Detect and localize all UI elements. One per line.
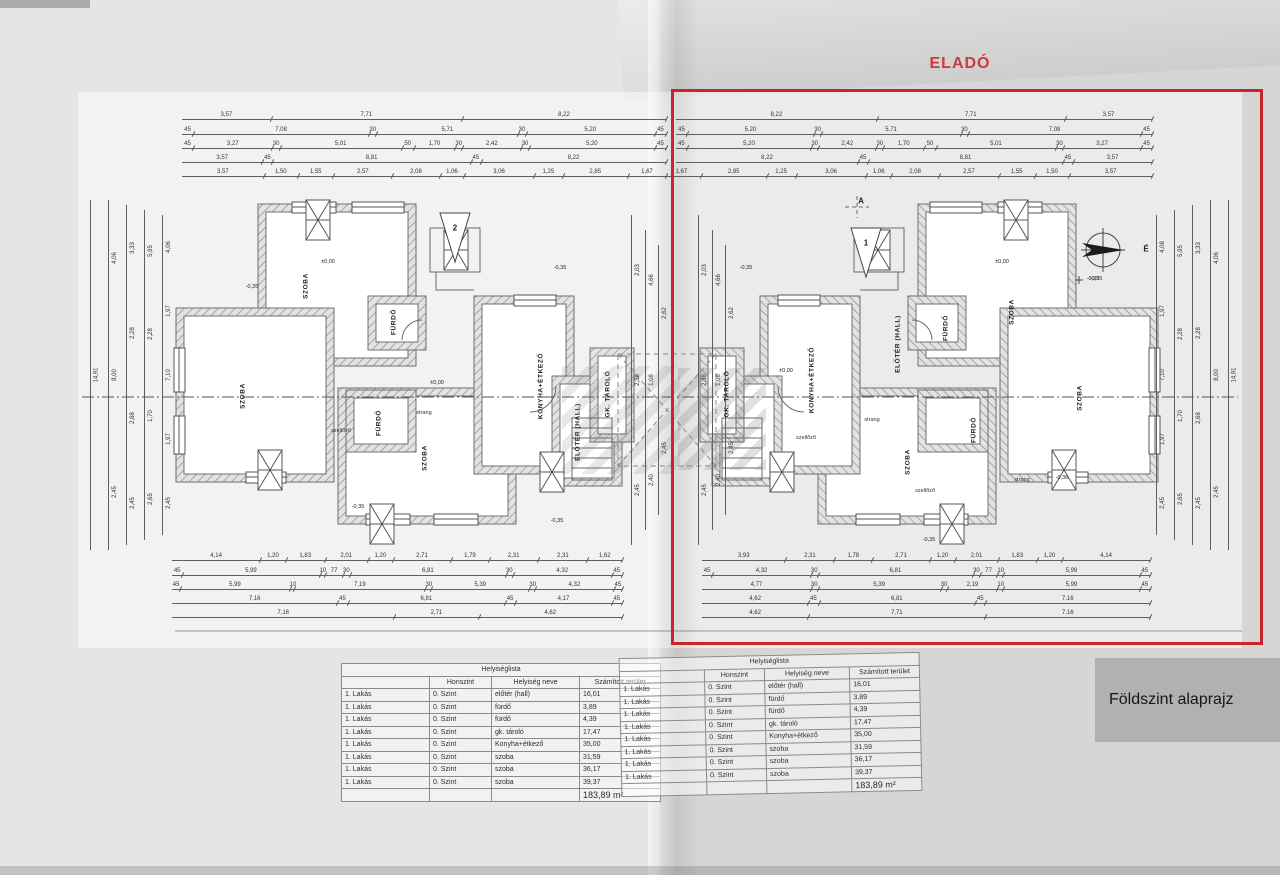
watermark — [562, 366, 680, 474]
annotation-label: strang — [416, 410, 431, 416]
dimension-label: 2,68 — [130, 412, 136, 424]
dimension-label: 5,95 — [148, 245, 154, 257]
table-cell — [342, 676, 430, 689]
dimension-row: 3,57458,81458,22 — [182, 153, 666, 163]
dimension-column: 5,952,281,702,65 — [144, 210, 156, 540]
room-list-table-left: HelyiséglistaHonszintHelyiség neveSzámít… — [341, 663, 661, 802]
dimension-label: 7,10 — [166, 369, 172, 381]
table-cell: 1. Lakás — [342, 689, 430, 702]
table-cell: Helyiség neve — [492, 676, 580, 689]
dimension-row: 7,16456,81454,1745 — [172, 594, 622, 604]
dimension-label: 4,32 — [535, 582, 614, 590]
level-mark-label: ±0,00 — [321, 259, 335, 265]
dimension-label: 2,28 — [148, 328, 154, 340]
table-cell: 1. Lakás — [342, 776, 430, 789]
table-cell: Honszint — [430, 676, 492, 689]
table-cell — [430, 789, 492, 802]
dimension-label: 1,20 — [260, 553, 286, 561]
dimension-label: 5,39 — [431, 582, 529, 590]
dimension-label: 7,08 — [193, 127, 369, 135]
dimension-label: 1,55 — [298, 169, 333, 177]
scanned-floorplan-page: 3,577,718,22457,08305,71305,2045453,2730… — [0, 0, 1280, 875]
dimension-row: 3,577,718,22 — [182, 110, 666, 120]
dimension-label: 5,71 — [376, 127, 518, 135]
table-cell: 0. Szint — [430, 776, 492, 789]
table-cell: 1. Lakás — [342, 751, 430, 764]
table-cell: 0. Szint — [430, 726, 492, 739]
dimension-label: 45 — [612, 596, 622, 604]
dimension-label: 2,71 — [393, 553, 451, 561]
dimension-label: 45 — [182, 141, 193, 149]
dimension-row: 457,08305,71305,2045 — [182, 125, 666, 135]
table-cell: 0. Szint — [430, 714, 492, 727]
table-cell: 0. Szint — [430, 764, 492, 777]
dimension-label: 2,03 — [635, 264, 641, 276]
dimension-label: 2,31 — [489, 553, 538, 561]
table-cell: 1. Lakás — [342, 701, 430, 714]
dimension-row: 3,571,501,552,572,081,063,061,252,851,67 — [182, 167, 666, 177]
dimension-label: 2,42 — [462, 141, 521, 149]
table-cell: 0. Szint — [430, 689, 492, 702]
dimension-row: 453,27305,01501,70302,42305,2045 — [182, 139, 666, 149]
dimension-label: 2,45 — [112, 486, 118, 498]
dimension-column: 4,068,002,45 — [108, 200, 120, 550]
dimension-label: 30 — [272, 141, 279, 149]
dimension-label: 4,17 — [515, 596, 611, 604]
dimension-label: 3,27 — [193, 141, 273, 149]
dimension-label: 30 — [343, 568, 350, 576]
room-name-label: SZOBA — [422, 445, 429, 471]
dimension-label: 45 — [262, 155, 272, 163]
dimension-label: 2,45 — [635, 484, 641, 496]
dimension-column: 3,332,282,682,45 — [126, 205, 138, 545]
dimension-label: 1,83 — [286, 553, 325, 561]
dimension-label: 8,22 — [462, 112, 666, 120]
table-cell — [492, 789, 580, 802]
dimension-label: 5,20 — [526, 127, 655, 135]
room-name-label: FÜRDŐ — [376, 410, 383, 436]
dimension-label: 45 — [614, 582, 622, 590]
dimension-label: 1,50 — [264, 169, 298, 177]
table-cell: szoba — [492, 776, 580, 789]
dimension-label: 8,00 — [112, 369, 118, 381]
dimension-label: 1,25 — [534, 169, 563, 177]
plan-caption-box: Földszint alaprajz — [1095, 658, 1280, 742]
dimension-label: 2,40 — [649, 474, 655, 486]
dimension-label: 2,45 — [130, 497, 136, 509]
dimension-row: 455,991077306,81304,3245 — [172, 566, 622, 576]
dimension-label: 45 — [172, 568, 182, 576]
dimension-label: 4,62 — [479, 610, 622, 618]
table-cell: Helyiséglista — [342, 664, 661, 677]
table-cell: előtér (hall) — [492, 689, 580, 702]
dimension-label: 14,91 — [94, 367, 100, 382]
level-mark-label: ±0,00 — [430, 380, 444, 386]
table-cell: 1. Lakás — [342, 764, 430, 777]
room-name-label: KONYHA+ÉTKEZŐ — [538, 353, 545, 419]
dimension-label: 2,57 — [333, 169, 392, 177]
dimension-label: 45 — [471, 155, 481, 163]
annotation-label: szellőző — [331, 428, 351, 434]
dimension-label: 2,71 — [394, 610, 478, 618]
dimension-label: 8,22 — [481, 155, 666, 163]
table-cell — [622, 782, 707, 796]
room-name-label: FÜRDŐ — [391, 309, 398, 335]
dimension-label: 45 — [172, 582, 180, 590]
dimension-label: 45 — [505, 596, 515, 604]
dimension-label: 3,57 — [182, 155, 262, 163]
dimension-label: 3,57 — [182, 112, 271, 120]
dimension-label: 1,97 — [166, 305, 172, 317]
dimension-label: 30 — [521, 141, 528, 149]
table-cell: 0. Szint — [430, 701, 492, 714]
table-cell: 183,89 m² — [852, 777, 922, 791]
dimension-label: 77 — [325, 568, 343, 576]
dimension-label: 5,20 — [529, 141, 655, 149]
dimension-label: 3,33 — [130, 242, 136, 254]
dimension-label: 1,62 — [587, 553, 622, 561]
table-cell — [767, 779, 852, 793]
dimension-column: 14,91 — [90, 200, 102, 550]
dimension-label: 30 — [506, 568, 513, 576]
table-cell: fürdő — [492, 701, 580, 714]
dimension-label: 5,99 — [182, 568, 319, 576]
dimension-label: 45 — [182, 127, 193, 135]
dimension-label: 50 — [402, 141, 414, 149]
dimension-label: 1,70 — [414, 141, 455, 149]
dimension-label: 2,01 — [325, 553, 368, 561]
table-cell: gk. tároló — [492, 726, 580, 739]
dimension-label: 30 — [518, 127, 525, 135]
room-name-label: SZOBA — [240, 383, 247, 409]
level-mark-label: -0,35 — [246, 284, 259, 290]
dimension-label: 45 — [655, 127, 666, 135]
dimension-label: 30 — [369, 127, 376, 135]
dimension-label: 7,16 — [172, 596, 337, 604]
dimension-label: 7,16 — [172, 610, 394, 618]
dimension-label: 3,06 — [464, 169, 534, 177]
dimension-row: 455,99107,19305,39304,3245 — [172, 580, 622, 590]
dimension-column: 4,061,977,101,972,45 — [162, 215, 174, 535]
table-cell — [707, 781, 767, 795]
dimension-label: 4,06 — [166, 241, 172, 253]
table-cell: 0. Szint — [430, 751, 492, 764]
dimension-label: 8,81 — [272, 155, 470, 163]
dimension-label: 45 — [337, 596, 347, 604]
dimension-label: 7,19 — [294, 582, 425, 590]
section-marker-label: 2 — [453, 224, 457, 233]
dimension-label: 2,08 — [392, 169, 440, 177]
dimension-label: 4,14 — [172, 553, 260, 561]
room-list-table-right: HelyiséglistaHonszintHelyiség neveSzámít… — [619, 652, 923, 797]
dimension-label: 1,67 — [628, 169, 666, 177]
table-cell — [342, 789, 430, 802]
dimension-label: 1,20 — [368, 553, 394, 561]
for-sale-highlight-rectangle — [671, 89, 1263, 645]
dimension-label: 4,66 — [649, 274, 655, 286]
dimension-label: 5,01 — [280, 141, 402, 149]
level-mark-label: -0,35 — [352, 504, 365, 510]
dimension-label: 4,32 — [513, 568, 612, 576]
table-cell: fürdő — [492, 714, 580, 727]
dimension-label: 3,57 — [182, 169, 264, 177]
table-cell: szoba — [492, 764, 580, 777]
dimension-label: 1,06 — [440, 169, 464, 177]
dimension-label: 30 — [455, 141, 462, 149]
dimension-label: 1,79 — [451, 553, 489, 561]
dimension-label: 6,81 — [348, 596, 505, 604]
dimension-row: 7,162,714,62 — [172, 608, 622, 618]
dimension-row: 4,141,201,832,011,202,711,792,312,311,62 — [172, 551, 622, 561]
table-cell: szoba — [492, 751, 580, 764]
dimension-label: 2,45 — [166, 497, 172, 509]
dimension-label: 6,81 — [350, 568, 506, 576]
table-cell: 1. Lakás — [342, 726, 430, 739]
dimension-label: 1,97 — [166, 433, 172, 445]
dimension-label: 2,65 — [148, 493, 154, 505]
dimension-label: 1,70 — [148, 410, 154, 422]
level-mark-label: -0,35 — [554, 265, 567, 271]
dimension-label: 45 — [612, 568, 622, 576]
dimension-label: 45 — [655, 141, 666, 149]
table-cell: 1. Lakás — [342, 714, 430, 727]
dimension-label: 5,99 — [180, 582, 289, 590]
table-cell: 0. Szint — [430, 739, 492, 752]
room-name-label: SZOBA — [303, 273, 310, 299]
for-sale-label: ELADÓ — [905, 55, 1015, 73]
dimension-label: 7,71 — [271, 112, 462, 120]
dimension-label: 2,31 — [538, 553, 587, 561]
dimension-label: 2,62 — [662, 307, 668, 319]
dimension-label: 2,85 — [563, 169, 628, 177]
table-cell: 1. Lakás — [342, 739, 430, 752]
plan-caption-text: Földszint alaprajz — [1109, 691, 1234, 709]
table-cell: Konyha+étkező — [492, 739, 580, 752]
dimension-label: 4,06 — [112, 252, 118, 264]
level-mark-label: -0,35 — [551, 518, 564, 524]
dimension-label: 2,28 — [130, 327, 136, 339]
